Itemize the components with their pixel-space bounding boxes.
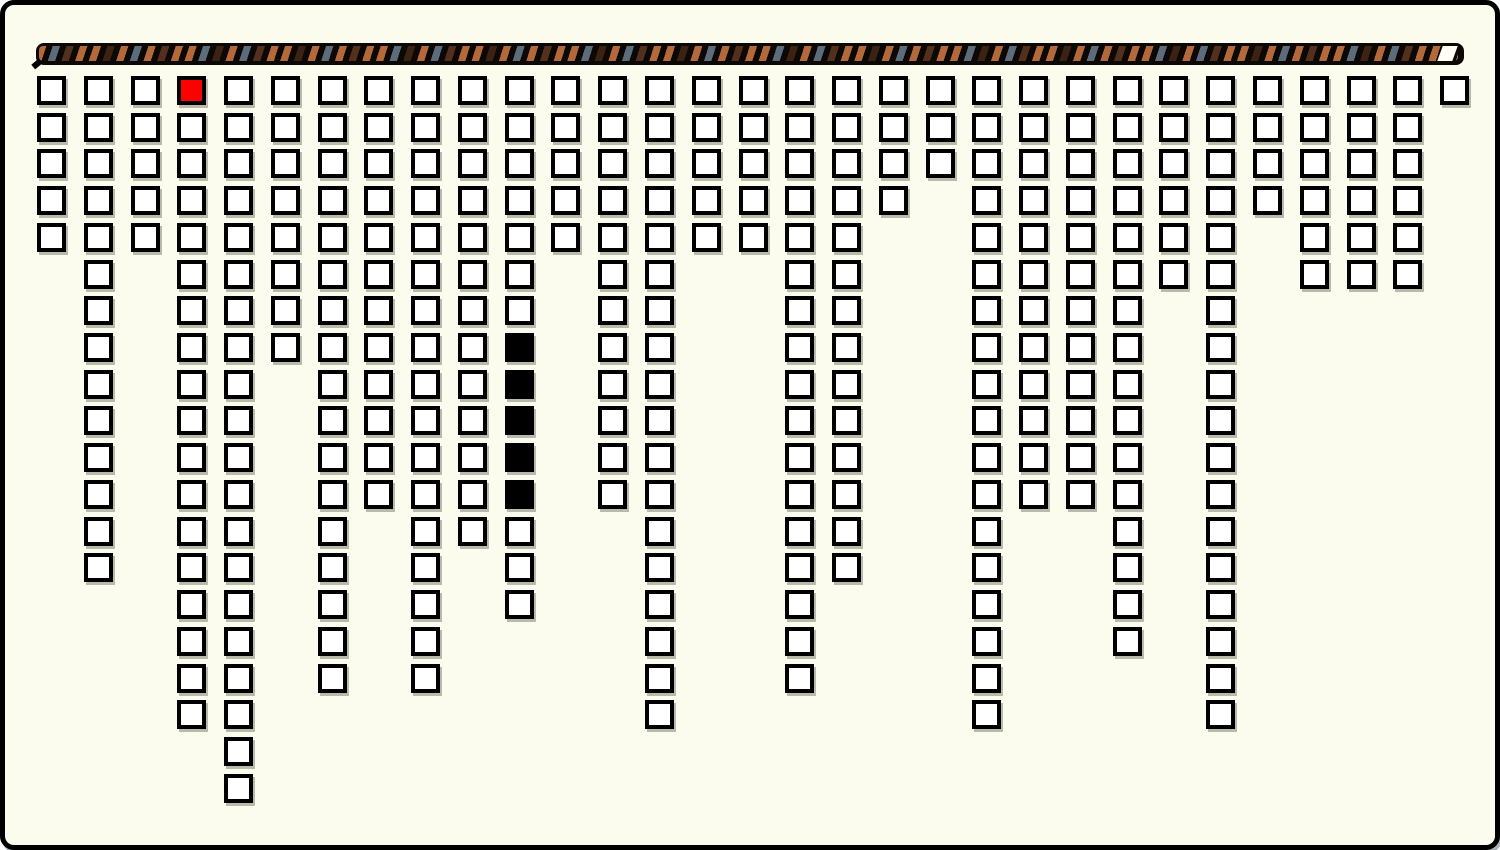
block[interactable] (411, 553, 440, 582)
block[interactable] (972, 333, 1001, 362)
block[interactable] (832, 296, 861, 325)
block[interactable] (458, 296, 487, 325)
block[interactable] (598, 296, 627, 325)
block[interactable] (318, 333, 347, 362)
block[interactable] (84, 260, 113, 289)
block[interactable] (1019, 76, 1048, 105)
block[interactable] (364, 113, 393, 142)
block[interactable] (692, 186, 721, 215)
block[interactable] (785, 443, 814, 472)
block[interactable] (1347, 186, 1376, 215)
block[interactable] (411, 149, 440, 178)
block[interactable] (739, 149, 768, 178)
block[interactable] (645, 370, 674, 399)
block[interactable] (1440, 76, 1469, 105)
block[interactable] (1113, 553, 1142, 582)
block[interactable] (1113, 480, 1142, 509)
block[interactable] (1113, 76, 1142, 105)
block[interactable] (458, 149, 487, 178)
block[interactable] (785, 370, 814, 399)
block[interactable] (972, 113, 1001, 142)
block[interactable] (1113, 149, 1142, 178)
block[interactable] (1019, 149, 1048, 178)
block[interactable] (972, 149, 1001, 178)
block[interactable] (177, 296, 206, 325)
block[interactable] (1019, 333, 1048, 362)
block[interactable] (84, 480, 113, 509)
block[interactable] (224, 76, 253, 105)
block[interactable] (551, 149, 580, 178)
block[interactable] (318, 627, 347, 656)
block[interactable] (645, 480, 674, 509)
block[interactable] (177, 333, 206, 362)
block[interactable] (785, 480, 814, 509)
block[interactable] (739, 113, 768, 142)
block[interactable] (1300, 76, 1329, 105)
block[interactable] (1159, 149, 1188, 178)
block[interactable] (645, 553, 674, 582)
block[interactable] (1019, 296, 1048, 325)
block[interactable] (1206, 480, 1235, 509)
block[interactable] (598, 76, 627, 105)
block[interactable] (505, 223, 534, 252)
block[interactable] (598, 480, 627, 509)
block[interactable] (1019, 370, 1048, 399)
block[interactable] (37, 149, 66, 178)
block[interactable] (598, 443, 627, 472)
block[interactable] (1347, 149, 1376, 178)
block[interactable] (271, 113, 300, 142)
block[interactable] (177, 627, 206, 656)
block[interactable] (832, 443, 861, 472)
block[interactable] (458, 113, 487, 142)
block[interactable] (879, 76, 908, 105)
block[interactable] (411, 260, 440, 289)
block[interactable] (598, 186, 627, 215)
block[interactable] (224, 590, 253, 619)
black-block[interactable] (505, 370, 534, 399)
block[interactable] (1113, 443, 1142, 472)
block[interactable] (318, 223, 347, 252)
block[interactable] (224, 113, 253, 142)
block[interactable] (972, 590, 1001, 619)
block[interactable] (224, 774, 253, 803)
block[interactable] (972, 627, 1001, 656)
black-block[interactable] (505, 480, 534, 509)
block[interactable] (1066, 480, 1095, 509)
block[interactable] (1206, 260, 1235, 289)
block[interactable] (458, 76, 487, 105)
block[interactable] (1300, 186, 1329, 215)
block[interactable] (1393, 149, 1422, 178)
block[interactable] (505, 113, 534, 142)
block[interactable] (1300, 113, 1329, 142)
block[interactable] (972, 370, 1001, 399)
block[interactable] (926, 113, 955, 142)
block[interactable] (364, 333, 393, 362)
block[interactable] (131, 113, 160, 142)
block[interactable] (1253, 186, 1282, 215)
block[interactable] (832, 113, 861, 142)
block[interactable] (177, 223, 206, 252)
block[interactable] (785, 590, 814, 619)
block[interactable] (1393, 76, 1422, 105)
block[interactable] (411, 517, 440, 546)
block[interactable] (926, 76, 955, 105)
block[interactable] (318, 443, 347, 472)
block[interactable] (505, 76, 534, 105)
block[interactable] (411, 333, 440, 362)
block[interactable] (458, 443, 487, 472)
block[interactable] (224, 370, 253, 399)
block[interactable] (505, 590, 534, 619)
block[interactable] (364, 406, 393, 435)
block[interactable] (1206, 296, 1235, 325)
block[interactable] (1113, 517, 1142, 546)
block[interactable] (785, 406, 814, 435)
block[interactable] (785, 76, 814, 105)
block[interactable] (224, 186, 253, 215)
block[interactable] (1253, 149, 1282, 178)
block[interactable] (84, 149, 113, 178)
block[interactable] (972, 406, 1001, 435)
block[interactable] (318, 76, 347, 105)
block[interactable] (1206, 76, 1235, 105)
block[interactable] (318, 406, 347, 435)
block[interactable] (1206, 517, 1235, 546)
block[interactable] (972, 260, 1001, 289)
block[interactable] (1113, 223, 1142, 252)
block[interactable] (318, 590, 347, 619)
block[interactable] (926, 149, 955, 178)
block[interactable] (84, 76, 113, 105)
block[interactable] (458, 223, 487, 252)
block[interactable] (84, 113, 113, 142)
block[interactable] (645, 627, 674, 656)
block[interactable] (224, 737, 253, 766)
block[interactable] (177, 700, 206, 729)
block[interactable] (224, 296, 253, 325)
block[interactable] (271, 223, 300, 252)
block[interactable] (411, 186, 440, 215)
block[interactable] (1066, 113, 1095, 142)
block[interactable] (785, 186, 814, 215)
block[interactable] (551, 223, 580, 252)
block[interactable] (84, 443, 113, 472)
block[interactable] (1206, 406, 1235, 435)
block[interactable] (505, 149, 534, 178)
block[interactable] (318, 370, 347, 399)
block[interactable] (224, 260, 253, 289)
block[interactable] (598, 370, 627, 399)
block[interactable] (364, 223, 393, 252)
block[interactable] (1393, 113, 1422, 142)
block[interactable] (1113, 186, 1142, 215)
block[interactable] (224, 443, 253, 472)
block[interactable] (271, 260, 300, 289)
block[interactable] (1393, 223, 1422, 252)
block[interactable] (972, 186, 1001, 215)
block[interactable] (177, 443, 206, 472)
block[interactable] (645, 333, 674, 362)
block[interactable] (972, 443, 1001, 472)
block[interactable] (1066, 223, 1095, 252)
block[interactable] (271, 76, 300, 105)
block[interactable] (1113, 627, 1142, 656)
block[interactable] (505, 186, 534, 215)
block[interactable] (224, 664, 253, 693)
block[interactable] (598, 333, 627, 362)
block[interactable] (645, 296, 674, 325)
block[interactable] (1206, 223, 1235, 252)
block[interactable] (224, 517, 253, 546)
block[interactable] (224, 406, 253, 435)
block[interactable] (177, 149, 206, 178)
block[interactable] (598, 149, 627, 178)
block[interactable] (271, 186, 300, 215)
block[interactable] (551, 186, 580, 215)
block[interactable] (1159, 76, 1188, 105)
block[interactable] (1393, 186, 1422, 215)
block[interactable] (318, 113, 347, 142)
block[interactable] (972, 296, 1001, 325)
block[interactable] (505, 553, 534, 582)
block[interactable] (785, 113, 814, 142)
block[interactable] (1113, 590, 1142, 619)
block[interactable] (1113, 296, 1142, 325)
block[interactable] (318, 553, 347, 582)
block[interactable] (739, 76, 768, 105)
block[interactable] (832, 186, 861, 215)
block[interactable] (785, 627, 814, 656)
block[interactable] (1347, 113, 1376, 142)
block[interactable] (1066, 370, 1095, 399)
block[interactable] (1113, 406, 1142, 435)
block[interactable] (1159, 260, 1188, 289)
block[interactable] (1206, 553, 1235, 582)
block[interactable] (84, 406, 113, 435)
block[interactable] (1066, 443, 1095, 472)
block[interactable] (972, 664, 1001, 693)
block[interactable] (84, 186, 113, 215)
block[interactable] (879, 186, 908, 215)
block[interactable] (1019, 406, 1048, 435)
block[interactable] (1066, 186, 1095, 215)
block[interactable] (832, 480, 861, 509)
block[interactable] (832, 553, 861, 582)
block[interactable] (785, 333, 814, 362)
block[interactable] (645, 260, 674, 289)
block[interactable] (739, 223, 768, 252)
block[interactable] (1393, 260, 1422, 289)
block[interactable] (177, 370, 206, 399)
block[interactable] (224, 223, 253, 252)
block[interactable] (364, 260, 393, 289)
block[interactable] (1159, 223, 1188, 252)
block[interactable] (645, 664, 674, 693)
block[interactable] (598, 113, 627, 142)
block[interactable] (1066, 406, 1095, 435)
block[interactable] (692, 76, 721, 105)
block[interactable] (84, 553, 113, 582)
block[interactable] (1206, 333, 1235, 362)
block[interactable] (318, 260, 347, 289)
block[interactable] (1206, 149, 1235, 178)
block[interactable] (411, 223, 440, 252)
block[interactable] (785, 553, 814, 582)
block[interactable] (1300, 223, 1329, 252)
block[interactable] (692, 149, 721, 178)
block[interactable] (84, 296, 113, 325)
block[interactable] (411, 590, 440, 619)
block[interactable] (271, 296, 300, 325)
block[interactable] (224, 553, 253, 582)
block[interactable] (879, 149, 908, 178)
block[interactable] (1206, 186, 1235, 215)
block[interactable] (271, 149, 300, 178)
block[interactable] (1300, 260, 1329, 289)
block[interactable] (84, 370, 113, 399)
block[interactable] (1066, 296, 1095, 325)
block[interactable] (1113, 113, 1142, 142)
block[interactable] (411, 627, 440, 656)
block[interactable] (832, 517, 861, 546)
block[interactable] (458, 480, 487, 509)
block[interactable] (972, 517, 1001, 546)
block[interactable] (37, 186, 66, 215)
block[interactable] (645, 700, 674, 729)
block[interactable] (1253, 76, 1282, 105)
block[interactable] (458, 517, 487, 546)
block[interactable] (411, 406, 440, 435)
block[interactable] (832, 406, 861, 435)
red-block[interactable] (177, 76, 206, 105)
block[interactable] (785, 223, 814, 252)
block[interactable] (84, 223, 113, 252)
block[interactable] (177, 664, 206, 693)
block[interactable] (879, 113, 908, 142)
block[interactable] (505, 260, 534, 289)
block[interactable] (1206, 590, 1235, 619)
block[interactable] (271, 333, 300, 362)
block[interactable] (1347, 260, 1376, 289)
block[interactable] (1019, 480, 1048, 509)
block[interactable] (645, 223, 674, 252)
block[interactable] (318, 517, 347, 546)
block[interactable] (84, 333, 113, 362)
block[interactable] (645, 186, 674, 215)
block[interactable] (972, 553, 1001, 582)
block[interactable] (224, 480, 253, 509)
block[interactable] (224, 333, 253, 362)
block[interactable] (1019, 113, 1048, 142)
block[interactable] (1206, 443, 1235, 472)
block[interactable] (1159, 186, 1188, 215)
block[interactable] (645, 113, 674, 142)
block[interactable] (411, 664, 440, 693)
block[interactable] (972, 700, 1001, 729)
block[interactable] (411, 443, 440, 472)
block[interactable] (1206, 627, 1235, 656)
block[interactable] (785, 260, 814, 289)
block[interactable] (505, 296, 534, 325)
block[interactable] (177, 113, 206, 142)
block[interactable] (177, 406, 206, 435)
block[interactable] (645, 406, 674, 435)
block[interactable] (411, 296, 440, 325)
block[interactable] (1206, 370, 1235, 399)
block[interactable] (645, 517, 674, 546)
block[interactable] (224, 627, 253, 656)
block[interactable] (832, 370, 861, 399)
block[interactable] (177, 260, 206, 289)
block[interactable] (645, 590, 674, 619)
block[interactable] (972, 480, 1001, 509)
block[interactable] (692, 223, 721, 252)
block[interactable] (1066, 260, 1095, 289)
block[interactable] (832, 223, 861, 252)
block[interactable] (832, 260, 861, 289)
block[interactable] (224, 700, 253, 729)
block[interactable] (972, 76, 1001, 105)
block[interactable] (458, 406, 487, 435)
block[interactable] (1206, 664, 1235, 693)
block[interactable] (131, 186, 160, 215)
block[interactable] (131, 149, 160, 178)
block[interactable] (1019, 443, 1048, 472)
block[interactable] (832, 333, 861, 362)
black-block[interactable] (505, 333, 534, 362)
block[interactable] (458, 260, 487, 289)
block[interactable] (411, 76, 440, 105)
block[interactable] (364, 370, 393, 399)
block[interactable] (364, 76, 393, 105)
block[interactable] (177, 553, 206, 582)
block[interactable] (1253, 113, 1282, 142)
block[interactable] (411, 113, 440, 142)
block[interactable] (832, 149, 861, 178)
block[interactable] (318, 149, 347, 178)
block[interactable] (1113, 333, 1142, 362)
block[interactable] (1113, 260, 1142, 289)
block[interactable] (785, 517, 814, 546)
block[interactable] (692, 113, 721, 142)
block[interactable] (224, 149, 253, 178)
block[interactable] (551, 76, 580, 105)
block[interactable] (1206, 700, 1235, 729)
block[interactable] (364, 149, 393, 178)
block[interactable] (832, 76, 861, 105)
block[interactable] (458, 333, 487, 362)
block[interactable] (1206, 113, 1235, 142)
block[interactable] (598, 260, 627, 289)
block[interactable] (37, 223, 66, 252)
block[interactable] (1019, 223, 1048, 252)
block[interactable] (364, 443, 393, 472)
block[interactable] (598, 223, 627, 252)
block[interactable] (318, 186, 347, 215)
block[interactable] (785, 664, 814, 693)
block[interactable] (1066, 76, 1095, 105)
block[interactable] (785, 296, 814, 325)
black-block[interactable] (505, 406, 534, 435)
block[interactable] (318, 480, 347, 509)
block[interactable] (364, 296, 393, 325)
block[interactable] (1019, 260, 1048, 289)
block[interactable] (739, 186, 768, 215)
block[interactable] (177, 186, 206, 215)
block[interactable] (551, 113, 580, 142)
